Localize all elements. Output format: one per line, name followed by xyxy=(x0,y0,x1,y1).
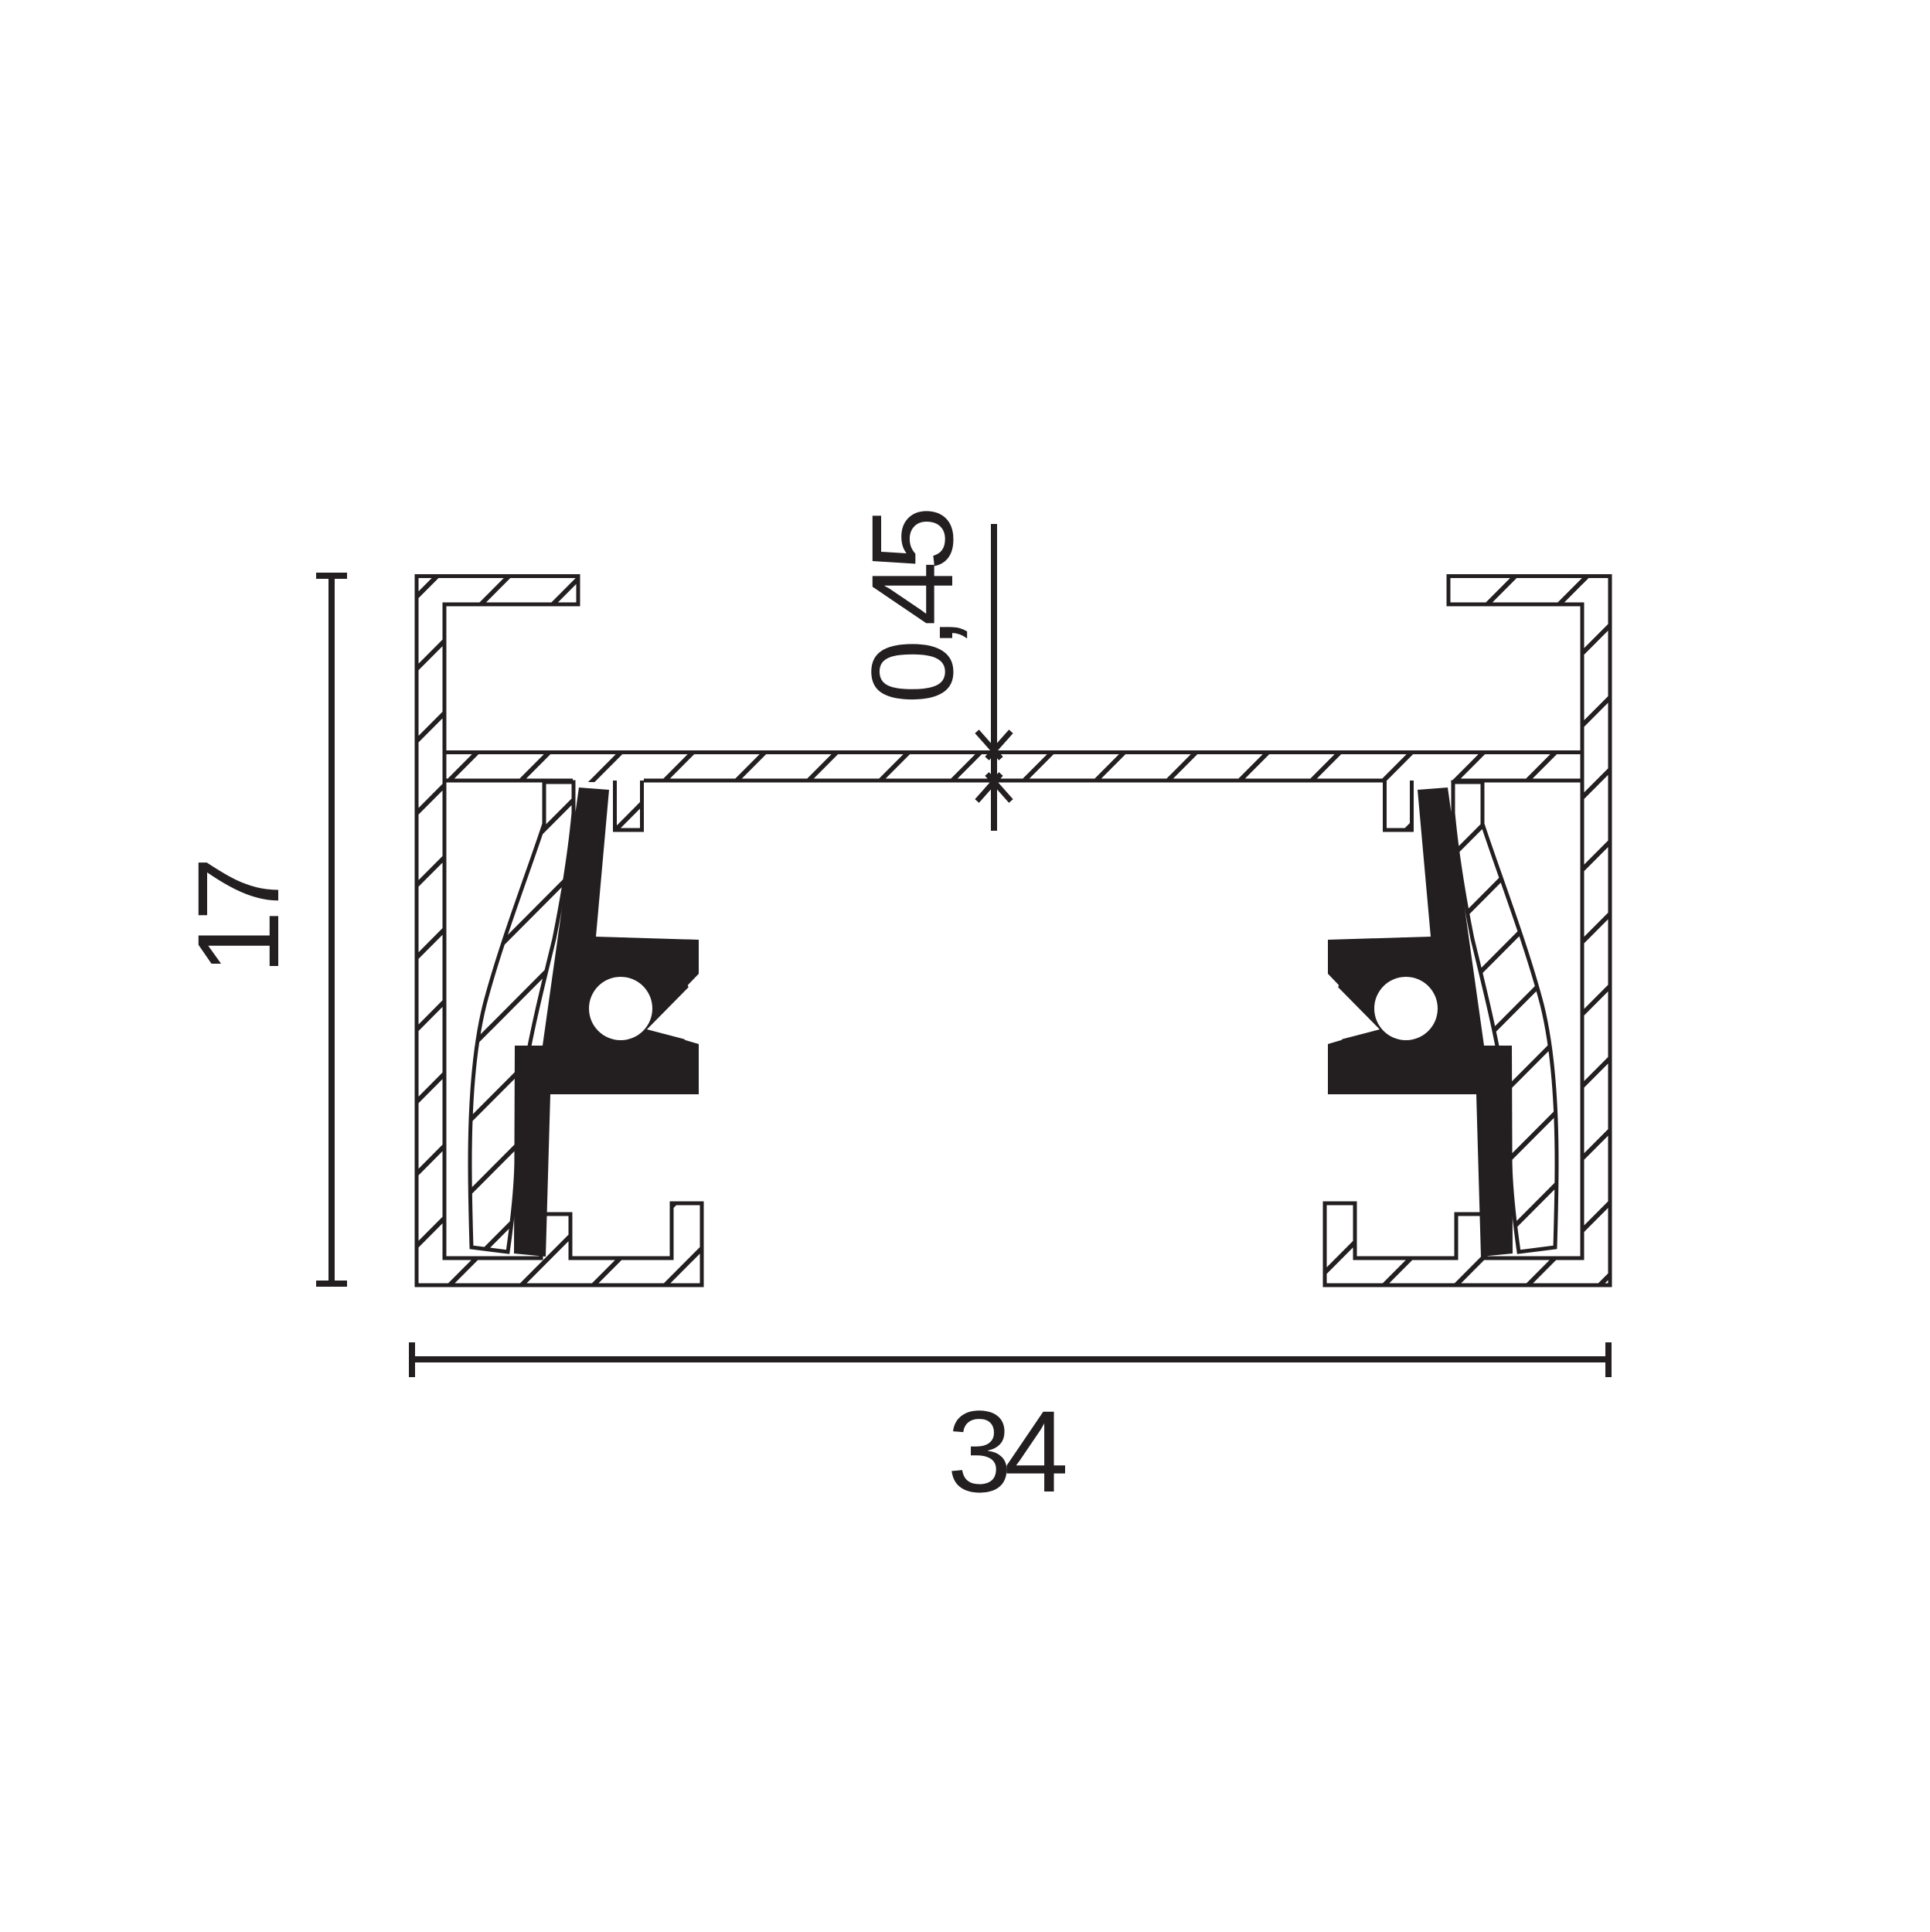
svg-text:34: 34 xyxy=(948,1386,1066,1516)
svg-text:17: 17 xyxy=(173,862,303,975)
svg-text:0,45: 0,45 xyxy=(847,510,977,704)
